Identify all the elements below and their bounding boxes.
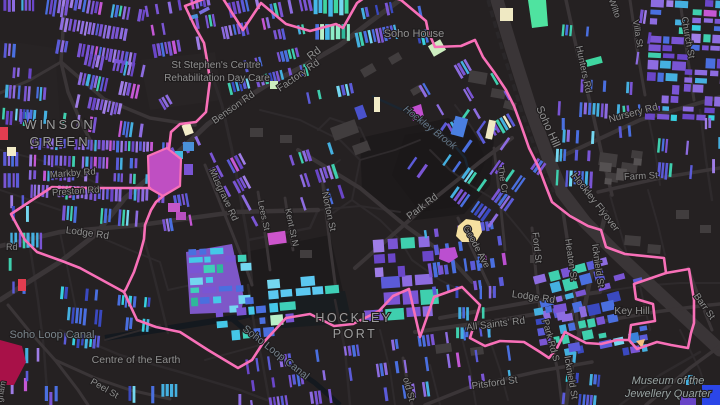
svg-text:HOCKLEY: HOCKLEY [315,311,392,325]
svg-text:Rd: Rd [6,242,18,252]
svg-text:Soho Loop Canal: Soho Loop Canal [9,329,94,341]
svg-text:Key Hill: Key Hill [614,305,650,317]
svg-text:Centre of the Earth: Centre of the Earth [92,354,181,366]
svg-text:WINSON: WINSON [24,117,95,132]
svg-text:Rehabilitation Day Care: Rehabilitation Day Care [164,73,270,84]
svg-text:PORT: PORT [333,327,378,341]
svg-text:Soho House: Soho House [384,28,445,40]
svg-text:GREEN: GREEN [29,134,90,149]
svg-text:Museum of the: Museum of the [632,375,705,387]
svg-text:St Stephen's Centre: St Stephen's Centre [171,60,261,71]
svg-text:Jewellery Quarter: Jewellery Quarter [624,388,713,400]
svg-text:Farm St: Farm St [624,170,659,183]
